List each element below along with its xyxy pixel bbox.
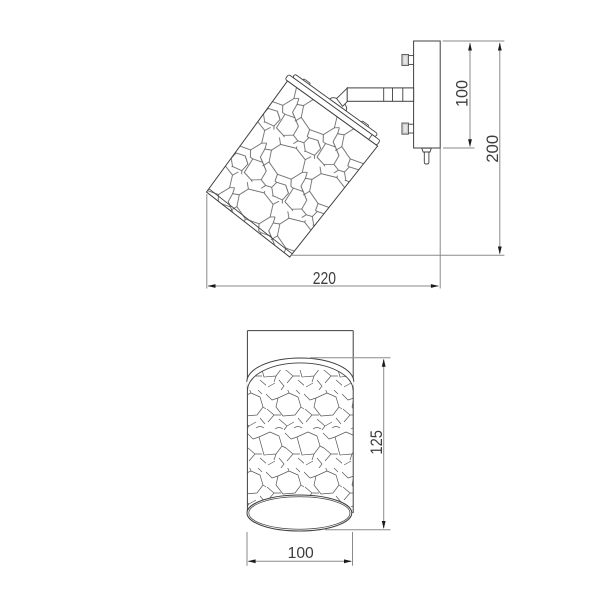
svg-text:200: 200 [483,135,502,163]
svg-text:100: 100 [288,545,315,562]
svg-text:220: 220 [313,268,336,288]
svg-text:125: 125 [367,430,386,455]
svg-text:100: 100 [452,80,471,107]
